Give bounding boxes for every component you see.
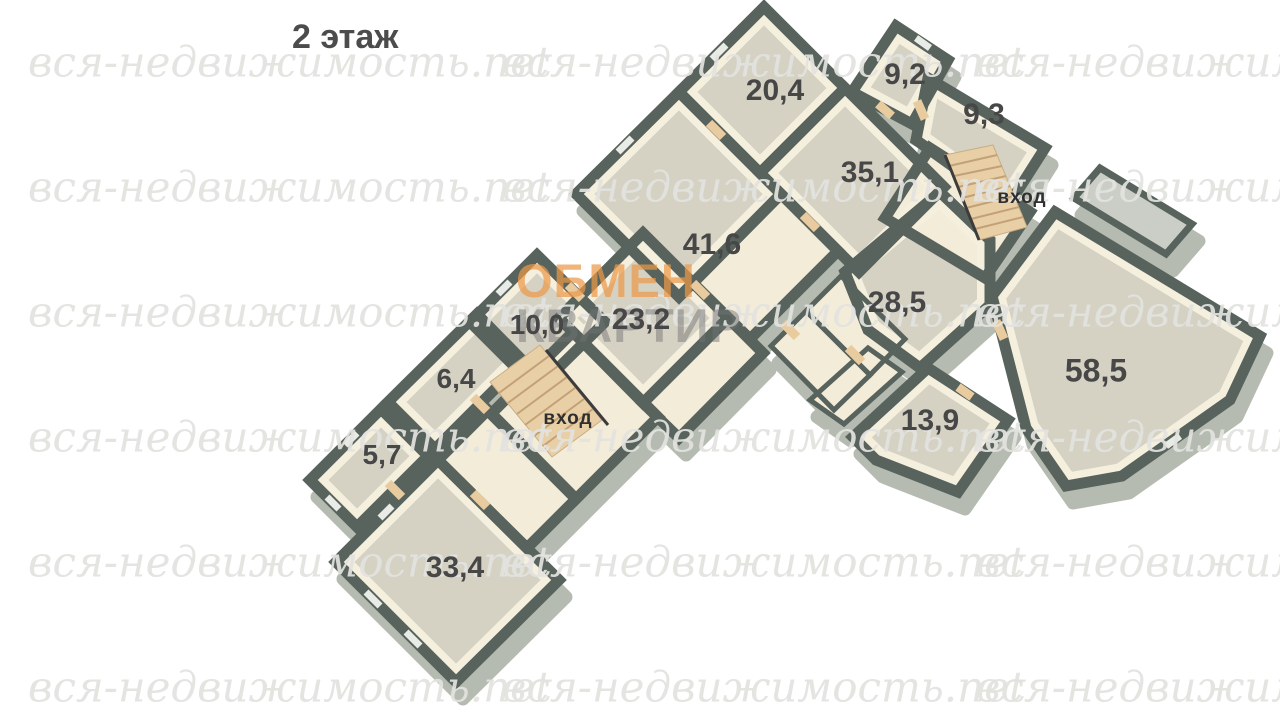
entrance-label-left: вход	[543, 408, 592, 430]
room-label-23-2: 23,2	[612, 303, 670, 337]
room-label-13-9: 13,9	[901, 404, 959, 438]
room-label-33-4: 33,4	[426, 551, 484, 585]
room-label-6-4: 6,4	[437, 363, 476, 395]
page-title: 2 этаж	[292, 18, 398, 57]
room-label-58-5: 58,5	[1065, 353, 1127, 390]
room-label-35-1: 35,1	[841, 156, 899, 190]
room-label-41-6: 41,6	[683, 228, 741, 262]
room-label-9-2: 9,2	[884, 58, 926, 92]
room-label-28-5: 28,5	[868, 286, 926, 320]
room-label-9-3: 9,3	[963, 98, 1005, 132]
floor-plan-page: вся-недвижимость.net вся-недвижимость.ne…	[0, 0, 1280, 720]
entrance-label-right: вход	[997, 187, 1046, 209]
room-label-5-7: 5,7	[363, 439, 402, 471]
room-label-20-4: 20,4	[746, 74, 804, 108]
room-label-10-0: 10,0	[510, 309, 565, 341]
